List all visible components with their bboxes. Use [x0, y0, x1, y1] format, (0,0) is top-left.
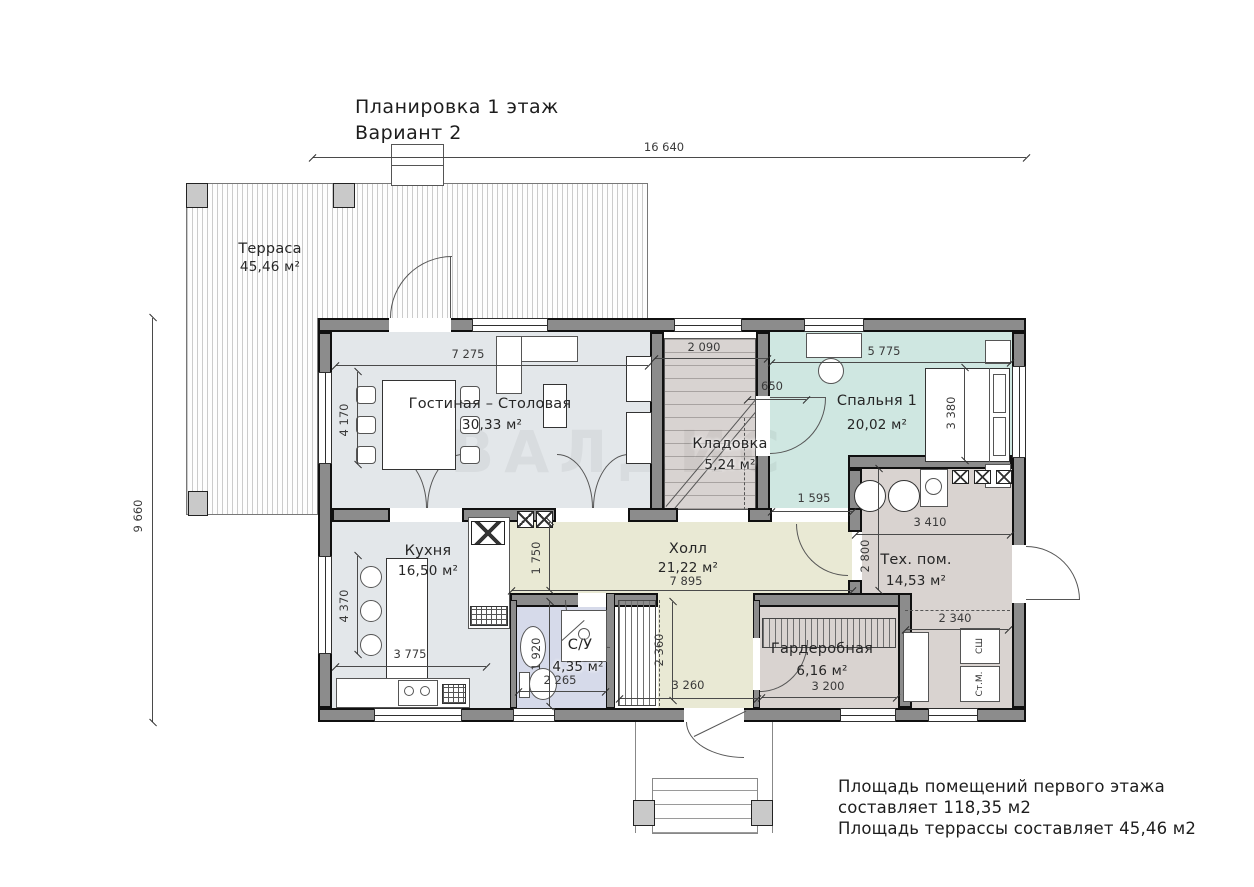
- dim-line: [620, 698, 757, 699]
- nightstand: [985, 340, 1011, 364]
- summary-line-1: Площадь помещений первого этажа: [838, 776, 1196, 797]
- room-area-bath: 4,35 м²: [552, 659, 603, 675]
- burner: [404, 686, 414, 696]
- dim-kitchen-window: 4 370: [337, 590, 351, 623]
- room-area-wardrobe: 6,16 м²: [796, 663, 847, 679]
- door-arc-tech-exterior: [1026, 546, 1080, 600]
- room-label-wardrobe: Гардеробная: [771, 641, 873, 657]
- terrace-post: [188, 491, 208, 516]
- dim-total-height: 9 660: [131, 500, 145, 533]
- dryer-label: СШ: [975, 638, 985, 654]
- room-area-bedroom: 20,02 м²: [847, 417, 907, 433]
- room-label-tech: Тех. пом.: [880, 552, 951, 568]
- tall-cabinet: [903, 632, 929, 702]
- oven: [442, 684, 466, 704]
- boiler-tank: [888, 480, 920, 512]
- dim-line: [772, 362, 1010, 363]
- room-area-hall: 21,22 м²: [658, 560, 718, 576]
- porch-post: [633, 800, 655, 826]
- door-arc-entrance: [686, 722, 744, 758]
- dim-hall-width: 7 895: [670, 574, 703, 588]
- dim-hall-depth: 1 750: [529, 542, 543, 575]
- dim-bath-height: 1 920: [529, 638, 543, 671]
- summary-block: Площадь помещений первого этажа составля…: [838, 776, 1196, 839]
- dim-laundry-width: 2 340: [939, 611, 972, 625]
- pillow: [993, 417, 1006, 456]
- window: [674, 318, 742, 332]
- room-area-closet: 5,24 м²: [704, 457, 755, 473]
- porch-steps: [652, 778, 758, 834]
- room-label-terrace: Терраса: [238, 241, 301, 257]
- dim-entry-height: 2 360: [652, 634, 666, 667]
- dim-line: [655, 358, 767, 359]
- cabinet: [626, 356, 652, 402]
- window: [928, 708, 978, 722]
- bar-stool: [360, 634, 382, 656]
- door-opening-right: [1012, 545, 1026, 603]
- terrace-post: [333, 183, 355, 208]
- room-area-tech: 14,53 м²: [886, 573, 946, 589]
- bed-line: [989, 368, 990, 462]
- window: [804, 318, 864, 332]
- summary-line-3: Площадь террассы составляет 45,46 м2: [838, 818, 1196, 839]
- dim-line: [152, 318, 153, 722]
- dim-line: [549, 522, 550, 590]
- room-label-bath: С/У: [568, 637, 592, 653]
- dining-chair: [356, 446, 376, 464]
- dim-bedroom-exit: 1 595: [798, 491, 831, 505]
- washer-label: Ст.М.: [975, 671, 985, 696]
- page-subtitle: Вариант 2: [355, 122, 462, 144]
- chimney: [391, 144, 444, 186]
- dim-line: [357, 556, 358, 654]
- electrical-panel: [952, 470, 969, 484]
- electrical-panel: [996, 470, 1012, 484]
- vent-shaft: [517, 511, 534, 528]
- tech-sink-bowl: [925, 478, 942, 495]
- dim-living-window: 4 170: [337, 404, 351, 437]
- boiler-tank: [854, 480, 886, 512]
- window: [513, 708, 555, 722]
- window: [1012, 366, 1026, 458]
- dim-stair-offset: 650: [761, 379, 783, 393]
- dim-tech-height: 2 800: [858, 540, 872, 573]
- electrical-panel: [974, 470, 991, 484]
- window: [318, 556, 332, 654]
- entry-closet-hatch: [618, 600, 656, 706]
- dim-entry-width: 3 260: [672, 678, 705, 692]
- dim-line: [748, 399, 806, 400]
- terrace-post: [186, 183, 208, 208]
- dim-bedroom-height: 3 380: [944, 397, 958, 430]
- room-label-living: Гостиная – Столовая: [409, 396, 572, 412]
- dim-line: [357, 372, 358, 464]
- room-label-closet: Кладовка: [692, 436, 767, 452]
- door-leaf: [1026, 599, 1080, 600]
- dim-total-width: 16 640: [644, 140, 684, 154]
- terrace-deck-side: [186, 318, 318, 515]
- dining-chair: [356, 416, 376, 434]
- door-leaf: [770, 397, 826, 398]
- dim-line: [336, 666, 486, 667]
- window: [840, 708, 896, 722]
- floor-plan-sheet: Планировка 1 этаж Вариант 2 ВАЛДИС: [0, 0, 1254, 887]
- pillow: [993, 374, 1006, 413]
- room-area-living: 30,33 м²: [462, 417, 522, 433]
- dim-line: [762, 697, 896, 698]
- dim-bath-width: 2 265: [544, 673, 577, 687]
- dim-living-width: 7 275: [452, 347, 485, 361]
- window: [472, 318, 548, 332]
- wall-wardrobe-top: [753, 593, 912, 607]
- dim-line: [512, 590, 852, 591]
- summary-line-2: составляет 118,35 м2: [838, 797, 1196, 818]
- room-label-hall: Холл: [669, 541, 707, 557]
- dresser: [806, 333, 862, 358]
- room-area-kitchen: 16,50 м²: [398, 563, 458, 579]
- dim-line: [336, 365, 648, 366]
- dining-table: [382, 380, 456, 470]
- dining-chair: [460, 446, 480, 464]
- dim-kitchen-width: 3 775: [394, 647, 427, 661]
- window: [374, 708, 462, 722]
- door-opening-wardrobe: [753, 638, 760, 690]
- room-area-terrace: 45,46 м²: [240, 259, 300, 275]
- cooktop: [470, 606, 508, 626]
- dim-line: [878, 469, 879, 590]
- dim-line: [313, 157, 1026, 158]
- room-label-bedroom: Спальня 1: [837, 393, 917, 409]
- bar-stool: [360, 600, 382, 622]
- dim-stair-width: 2 090: [688, 340, 721, 354]
- cabinet: [626, 412, 652, 464]
- vent-shaft: [536, 511, 553, 528]
- door-opening-terrace: [389, 318, 451, 332]
- porch-post: [751, 800, 773, 826]
- door-leaf: [450, 256, 451, 318]
- dim-bedroom-width: 5 775: [868, 344, 901, 358]
- wall-hall-top: [628, 508, 678, 522]
- bar-stool: [360, 566, 382, 588]
- room-label-kitchen: Кухня: [405, 543, 452, 559]
- dim-tech-width: 3 410: [914, 515, 947, 529]
- dim-line: [856, 534, 1010, 535]
- dim-line: [964, 368, 965, 460]
- dining-chair: [356, 386, 376, 404]
- dim-line: [906, 629, 1008, 630]
- dim-line: [519, 691, 605, 692]
- window: [318, 372, 332, 464]
- page-title: Планировка 1 этаж: [355, 96, 559, 118]
- wall-bath-left: [510, 600, 517, 708]
- dim-line: [772, 511, 852, 512]
- kitchen-sink: [471, 521, 505, 545]
- burner: [420, 686, 430, 696]
- wall-hall-top: [332, 508, 390, 522]
- dim-wardrobe-width: 3 200: [812, 679, 845, 693]
